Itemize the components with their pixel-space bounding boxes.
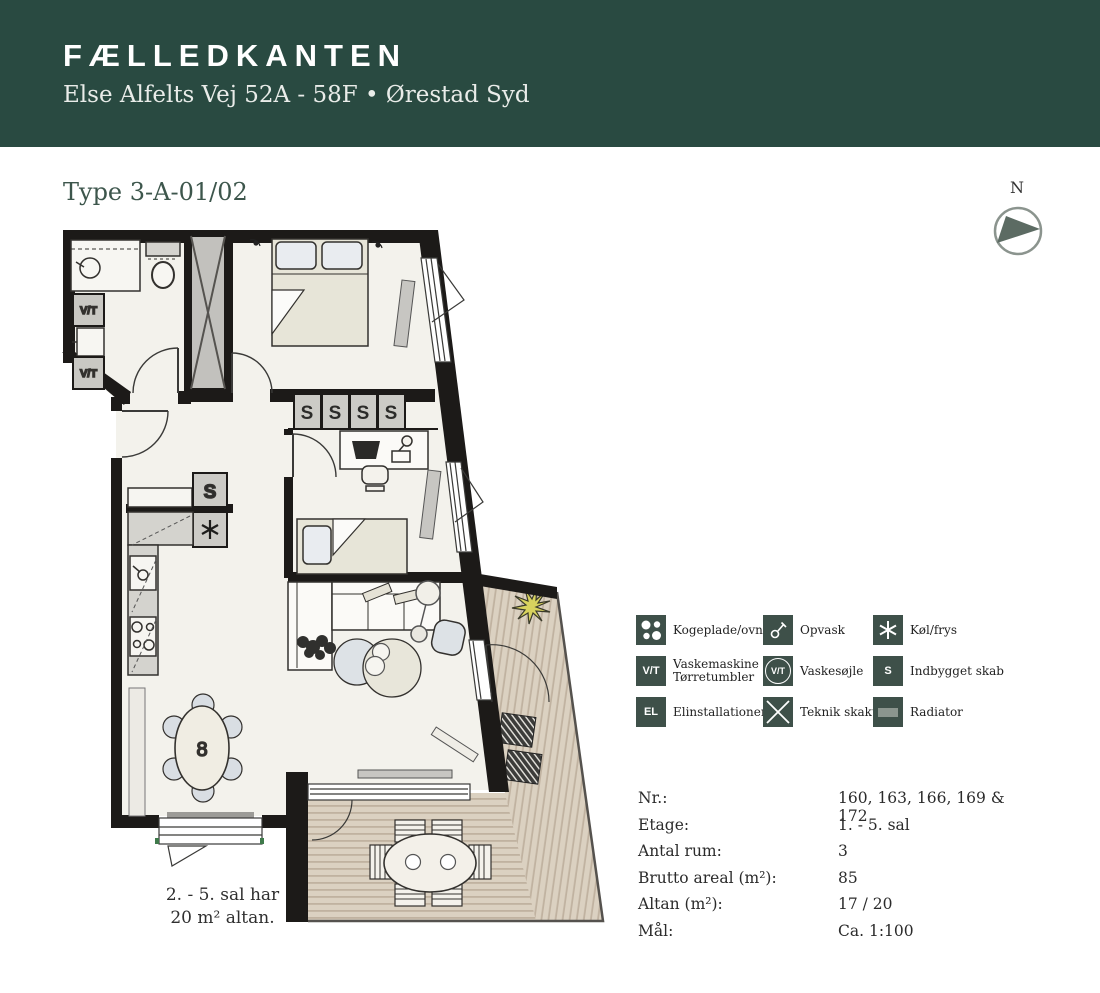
- svg-text:S: S: [385, 403, 398, 424]
- desk-chair: [362, 466, 388, 491]
- project-title: FÆLLEDKANTEN: [63, 38, 407, 74]
- legend-label: Teknik skakt: [800, 706, 877, 719]
- built-in-closet-icon: S: [873, 656, 903, 686]
- header-banner: FÆLLEDKANTEN Else Alfelts Vej 52A - 58F …: [0, 0, 1100, 147]
- detail-row: Mål: Ca. 1:100: [638, 922, 1028, 949]
- legend-label: Elinstallationer: [673, 706, 767, 719]
- legend-item: S Indbygget skab: [873, 656, 1004, 686]
- cabinet-box: [77, 328, 104, 356]
- cooktop-icon: [636, 615, 666, 645]
- legend-label: Køl/frys: [910, 624, 957, 637]
- radiator: [358, 770, 452, 778]
- electrical-icon: EL: [636, 697, 666, 727]
- legend-label: Vaskesøjle: [800, 665, 863, 678]
- legend-item: Kogeplade/ovn: [636, 615, 763, 645]
- legend-label: Opvask: [800, 624, 845, 637]
- balcony-note: 2. - 5. sal har 20 m² altan.: [130, 884, 315, 930]
- legend-item: EL Elinstallationer: [636, 697, 767, 727]
- legend-item: V/T Vaskemaskine Tørretumbler: [636, 656, 759, 686]
- svg-text:S: S: [301, 403, 314, 424]
- washer-dryer-icon: V/T: [636, 656, 666, 686]
- compass: N: [980, 178, 1060, 263]
- detail-value: 3: [838, 842, 1028, 860]
- detail-value: 1. - 5. sal: [838, 816, 1028, 834]
- legend-item: Teknik skakt: [763, 697, 877, 727]
- fridge-freezer-icon: [873, 615, 903, 645]
- technical-shaft: [191, 236, 225, 389]
- floor-plan: V/T V/T S S S S: [55, 222, 610, 940]
- detail-row: Brutto areal (m²): 85: [638, 869, 1028, 896]
- legend-row: Kogeplade/ovn Opvask: [636, 615, 1036, 656]
- legend-label: Radiator: [910, 706, 963, 719]
- washer-column-icon: V/T: [763, 656, 793, 686]
- legend: Kogeplade/ovn Opvask: [636, 615, 1036, 738]
- detail-value: 85: [838, 869, 1028, 887]
- desk: [340, 431, 428, 469]
- project-address: Else Alfelts Vej 52A - 58F • Ørestad Syd: [63, 82, 530, 108]
- svg-text:S: S: [204, 482, 217, 503]
- detail-row: Nr.: 160, 163, 166, 169 & 172: [638, 789, 1028, 816]
- kitchen-counter: [128, 512, 193, 545]
- detail-label: Nr.:: [638, 789, 838, 807]
- svg-text:V/T: V/T: [80, 305, 97, 317]
- legend-item: Radiator: [873, 697, 963, 727]
- hall-bench: [128, 488, 192, 507]
- svg-text:8: 8: [196, 739, 207, 761]
- legend-row: V/T Vaskemaskine Tørretumbler V/T Vaskes…: [636, 656, 1036, 697]
- detail-label: Etage:: [638, 816, 838, 834]
- closet-row: S S S S: [294, 394, 405, 429]
- outdoor-table: [384, 834, 476, 892]
- legend-item: Opvask: [763, 615, 845, 645]
- detail-label: Altan (m²):: [638, 895, 838, 913]
- detail-label: Mål:: [638, 922, 838, 940]
- legend-row: EL Elinstallationer Teknik skakt Radiato…: [636, 697, 1036, 738]
- detail-row: Altan (m²): 17 / 20: [638, 895, 1028, 922]
- apartment-type-label: Type 3-A-01/02: [63, 178, 248, 206]
- legend-label: Kogeplade/ovn: [673, 624, 763, 637]
- radiator: [129, 688, 145, 816]
- legend-item: Køl/frys: [873, 615, 957, 645]
- legend-label: Vaskemaskine Tørretumbler: [673, 658, 759, 684]
- brochure-page: FÆLLEDKANTEN Else Alfelts Vej 52A - 58F …: [0, 0, 1100, 993]
- compass-north-label: N: [1010, 178, 1024, 197]
- dishwasher-icon: [763, 615, 793, 645]
- legend-label: Indbygget skab: [910, 665, 1004, 678]
- detail-row: Antal rum: 3: [638, 842, 1028, 869]
- legend-item: V/T Vaskesøjle: [763, 656, 863, 686]
- detail-value: 17 / 20: [838, 895, 1028, 913]
- detail-row: Etage: 1. - 5. sal: [638, 816, 1028, 843]
- detail-label: Antal rum:: [638, 842, 838, 860]
- details-table: Nr.: 160, 163, 166, 169 & 172 Etage: 1. …: [638, 789, 1028, 949]
- svg-text:S: S: [357, 403, 370, 424]
- svg-text:S: S: [329, 403, 342, 424]
- balcony-note-line2: 20 m² altan.: [130, 907, 315, 930]
- radiator-icon: [873, 697, 903, 727]
- svg-text:V/T: V/T: [80, 368, 97, 380]
- kitchen-sink: [130, 556, 156, 590]
- technical-shaft-icon: [763, 697, 793, 727]
- balcony-note-line1: 2. - 5. sal har: [130, 884, 315, 907]
- detail-value: Ca. 1:100: [838, 922, 1028, 940]
- detail-label: Brutto areal (m²):: [638, 869, 838, 887]
